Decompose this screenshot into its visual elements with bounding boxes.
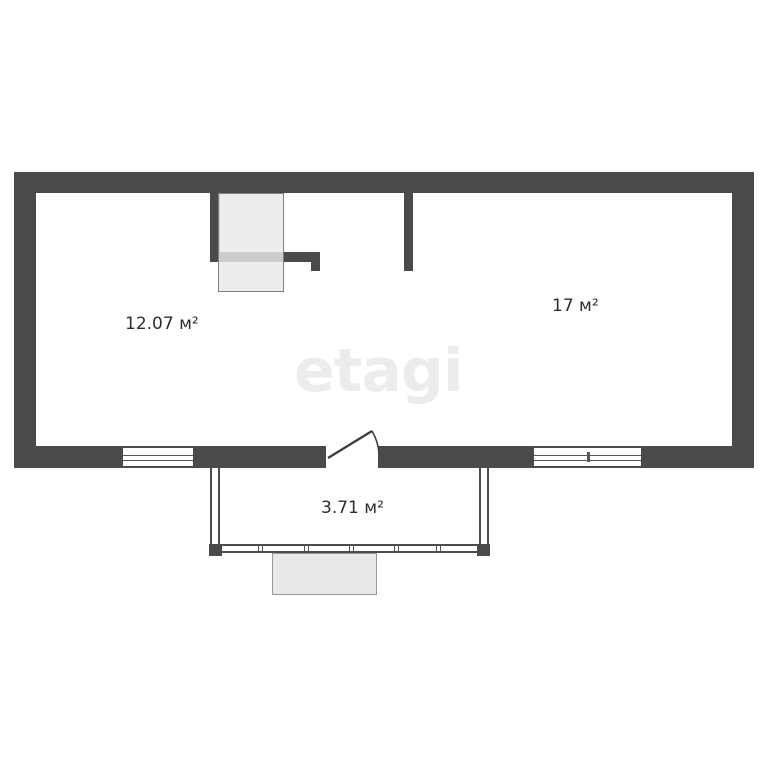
porch-slab — [272, 553, 377, 595]
floorplan: etagi 12.07 м² 17 м² 3.71 м² — [0, 0, 768, 768]
glazing-tick — [436, 546, 441, 551]
partition-wall — [404, 193, 413, 271]
room-area-label: 12.07 м² — [125, 314, 199, 334]
window-glass-line — [123, 455, 193, 461]
glazing-tick — [349, 546, 354, 551]
balcony-wall — [210, 468, 220, 545]
wall-top — [14, 172, 754, 193]
window — [534, 446, 641, 468]
glazing-tick — [258, 546, 263, 551]
wall-bottom-segment — [14, 446, 123, 468]
wall-right — [732, 172, 754, 468]
glazing-tick — [394, 546, 399, 551]
closet — [218, 193, 284, 292]
partition-wall-end — [311, 262, 320, 271]
balcony-glazing — [210, 544, 489, 553]
wall-bottom-segment — [193, 446, 326, 468]
balcony-corner-post — [209, 544, 222, 556]
balcony-corner-post — [477, 544, 490, 556]
glazing-tick — [304, 546, 309, 551]
wall-bottom-segment — [378, 446, 534, 468]
wall-left — [14, 172, 36, 468]
window — [123, 446, 193, 468]
wall-bottom-segment — [641, 446, 754, 468]
watermark: etagi — [294, 336, 462, 406]
room-area-label: 3.71 м² — [321, 498, 384, 518]
door-swing-icon — [310, 408, 400, 470]
room-area-label: 17 м² — [552, 296, 599, 316]
window-mullion — [587, 452, 590, 462]
balcony-wall — [479, 468, 489, 545]
